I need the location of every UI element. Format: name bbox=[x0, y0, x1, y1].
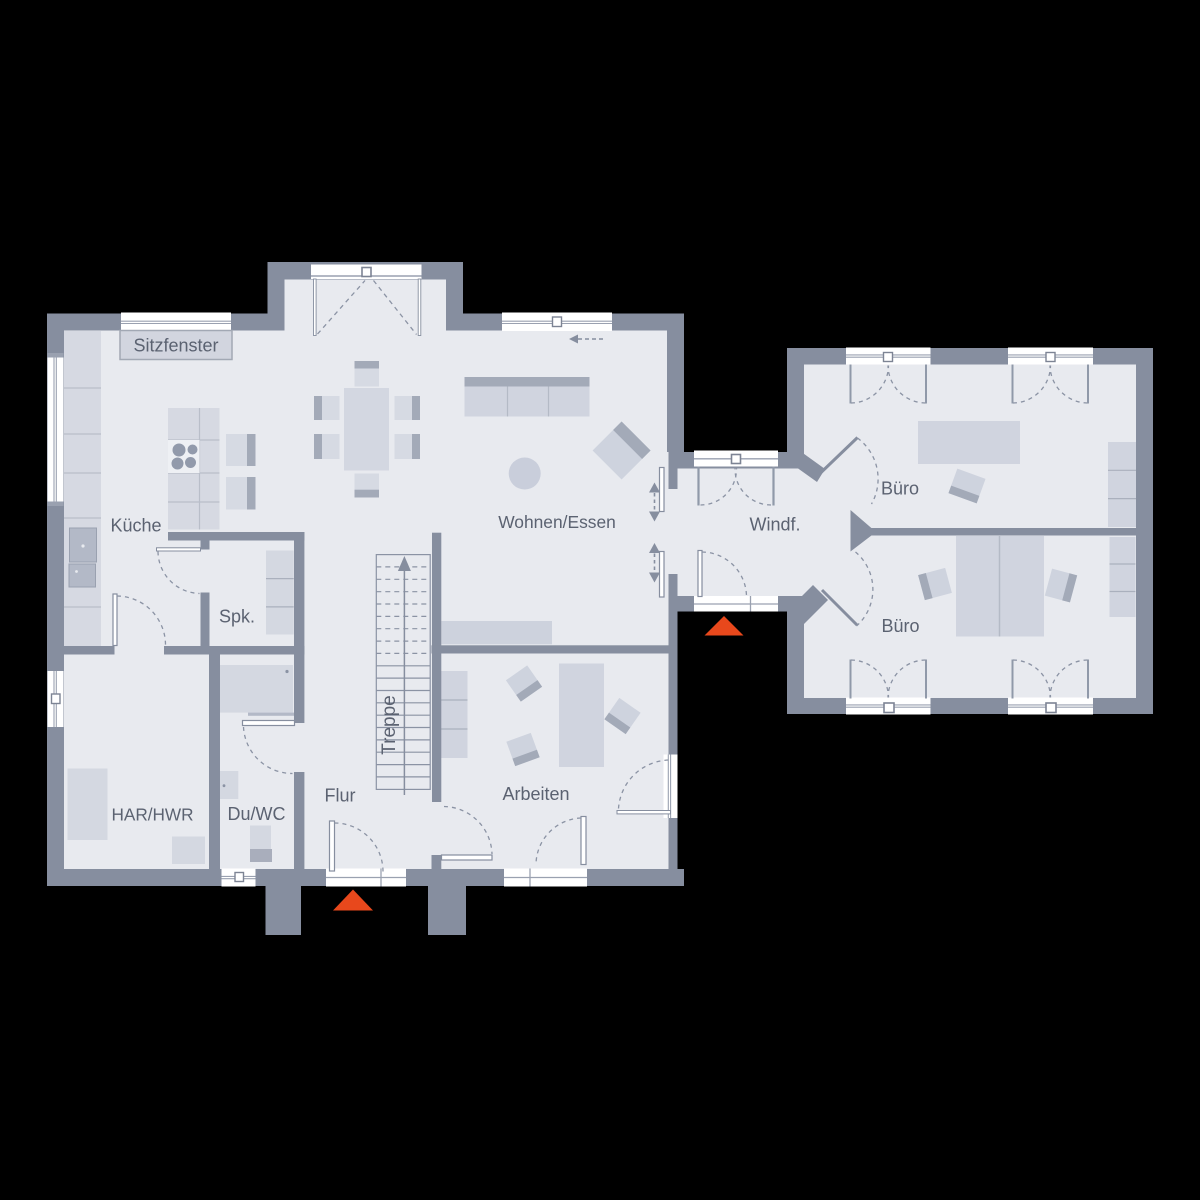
svg-text:HAR/HWR: HAR/HWR bbox=[111, 805, 193, 825]
svg-text:Windf.: Windf. bbox=[749, 515, 800, 535]
svg-text:Wohnen/Essen: Wohnen/Essen bbox=[498, 512, 616, 532]
svg-text:Treppe: Treppe bbox=[379, 695, 400, 755]
svg-text:Büro: Büro bbox=[881, 479, 919, 499]
svg-text:Du/WC: Du/WC bbox=[228, 804, 286, 824]
svg-text:Küche: Küche bbox=[110, 516, 161, 536]
svg-text:Arbeiten: Arbeiten bbox=[502, 784, 569, 804]
svg-text:Flur: Flur bbox=[325, 786, 356, 806]
svg-text:Spk.: Spk. bbox=[219, 607, 255, 627]
svg-text:Sitzfenster: Sitzfenster bbox=[133, 336, 218, 356]
svg-text:Büro: Büro bbox=[881, 616, 919, 636]
